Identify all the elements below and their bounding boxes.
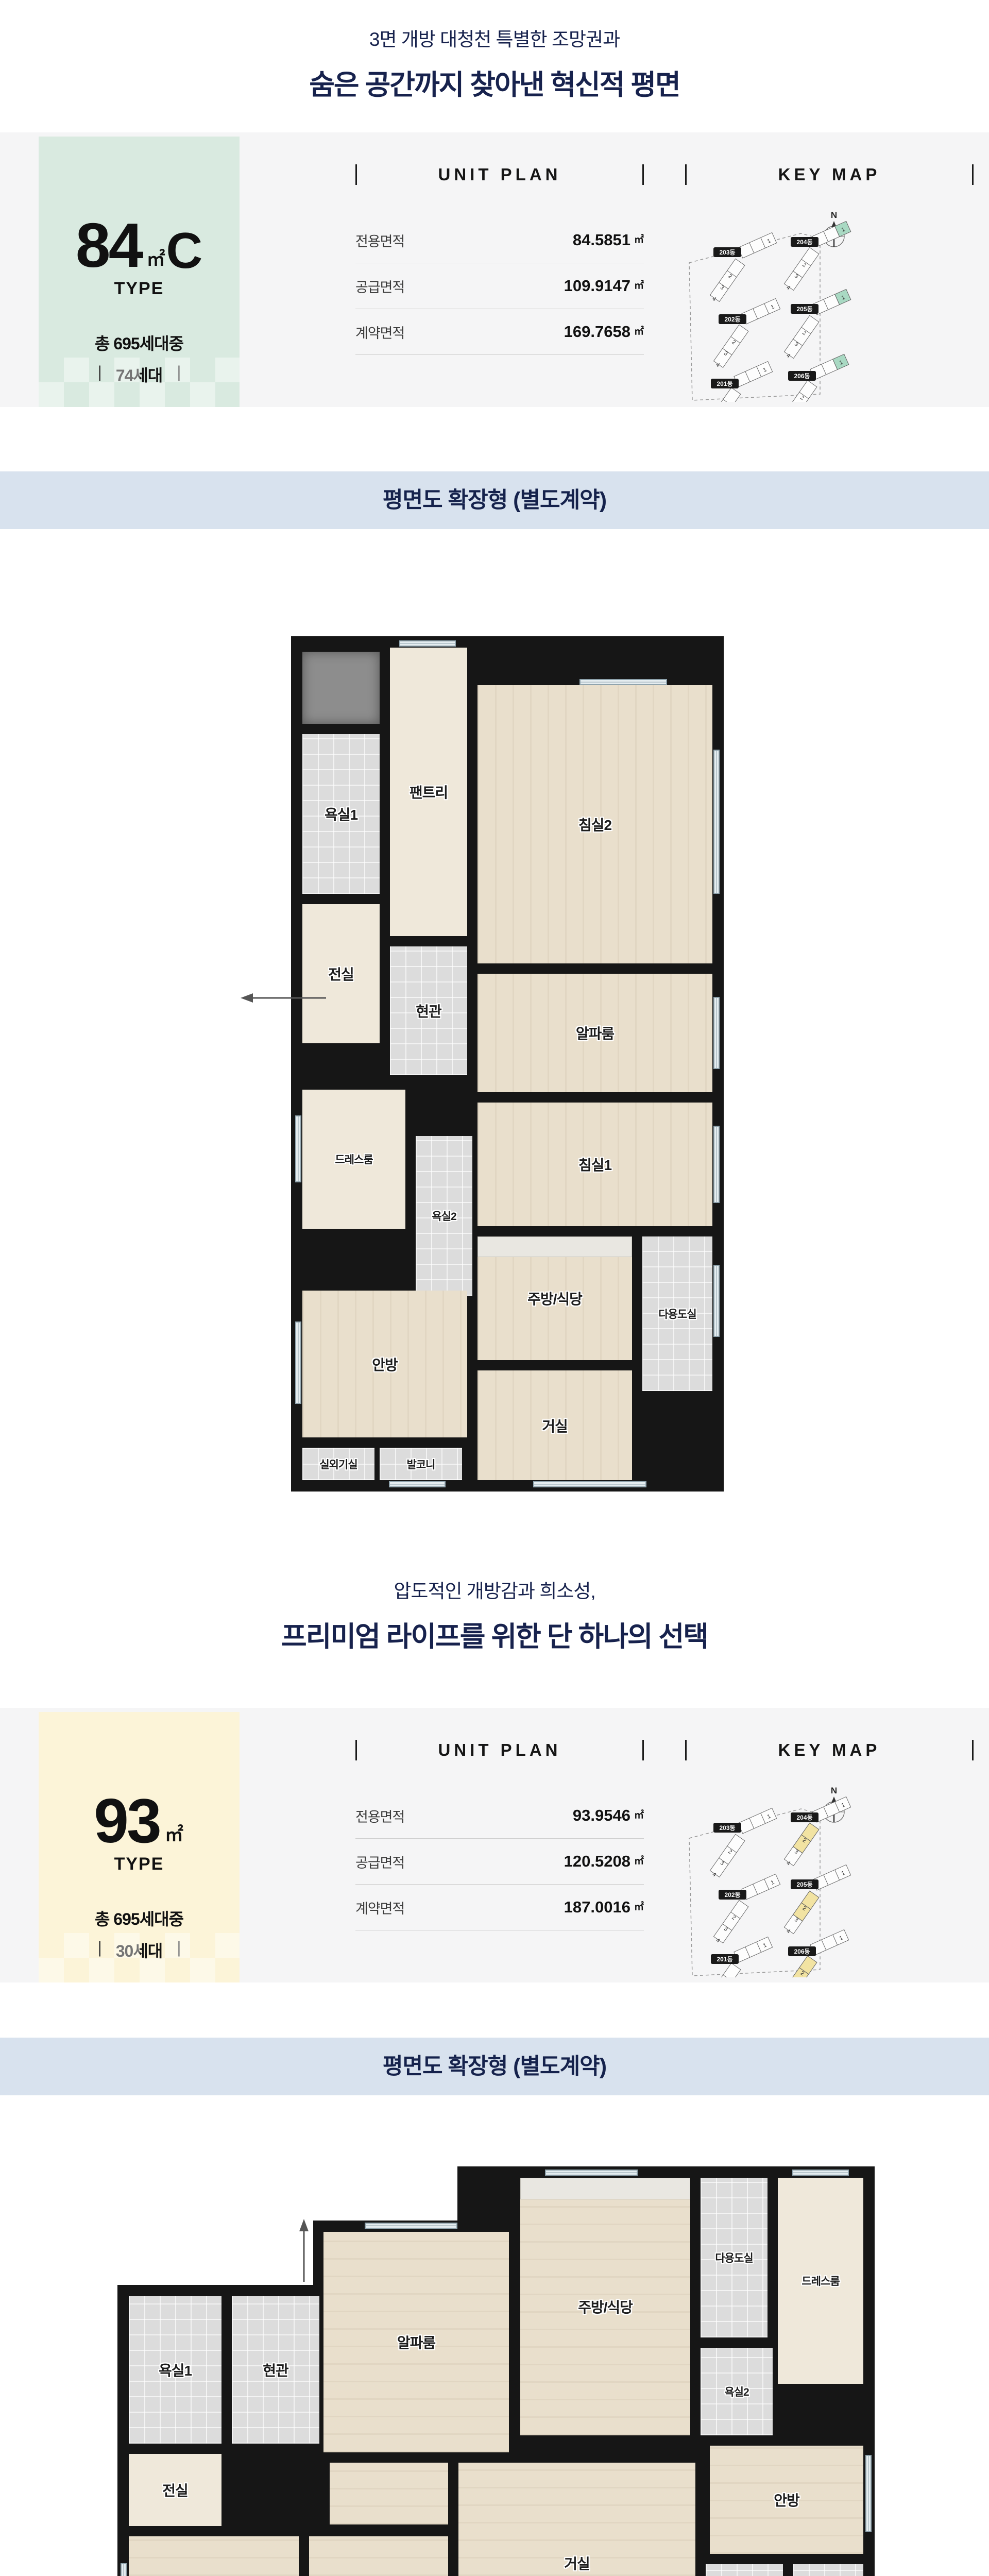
type-size-number: 93 (94, 1794, 160, 1848)
room-bath1: 욕실1 (129, 2296, 221, 2444)
area-number: 120.5208 (564, 1852, 630, 1870)
svg-text:N: N (831, 210, 837, 220)
svg-text:204동: 204동 (796, 239, 812, 246)
section-title-band-2: 평면도 확장형 (별도계약) (0, 2038, 989, 2095)
area-label: 전용면적 (355, 1806, 404, 1826)
intro2-subtitle: 압도적인 개방감과 희소성, (0, 1575, 989, 1603)
intro-block-1: 3면 개방 대청천 특별한 조망권과 숨은 공간까지 찾아낸 혁신적 평면 (0, 24, 989, 103)
entry-direction-arrow (298, 2218, 310, 2283)
key-map-84c: KEY MAP N2341203동2341204동2341202동2341205… (685, 132, 974, 407)
room-entrance: 현관 (390, 946, 467, 1075)
window (121, 2563, 127, 2576)
key-map-title: KEY MAP (687, 1740, 972, 1760)
area-value: 109.9147㎡ (564, 277, 644, 295)
kitchen-counter (520, 2178, 690, 2199)
svg-text:201동: 201동 (717, 1956, 732, 1963)
unit-plan-header: UNIT PLAN (355, 164, 644, 185)
type-card-84c: 84㎡C TYPE 총 695세대중 | 74세대 | (39, 137, 240, 407)
room-vestibule: 전실 (302, 904, 380, 1043)
entry-direction-arrow (240, 992, 327, 1004)
area-number: 109.9147 (564, 277, 630, 295)
intro1-title-strong: 혁신적 평면 (550, 70, 679, 100)
area-unit: ㎡ (634, 326, 644, 337)
window (713, 1265, 720, 1337)
floorplan-93: 욕실1 현관 전실 알파룸 주방/식당 다용도실 드레스룸 욕실2 안방 거실 … (117, 2166, 875, 2576)
svg-text:202동: 202동 (724, 1891, 740, 1899)
section-title-band-1: 평면도 확장형 (별도계약) (0, 471, 989, 529)
type-label: TYPE (39, 279, 240, 299)
intro2-title-strong: 단 하나의 선택 (547, 1621, 708, 1652)
area-label: 계약면적 (355, 322, 404, 342)
key-map-header: KEY MAP (685, 1740, 974, 1760)
unit-plan-header: UNIT PLAN (355, 1740, 644, 1760)
area-number: 84.5851 (573, 231, 630, 249)
svg-text:203동: 203동 (719, 1824, 735, 1832)
room-dressroom: 드레스룸 (778, 2178, 863, 2384)
table-row: 공급면적 109.9147㎡ (355, 263, 644, 309)
svg-text:206동: 206동 (794, 372, 810, 380)
floorplan-84c: 욕실1 전실 팬트리 현관 침실2 알파룸 침실1 드레스룸 욕실2 안방 주방… (291, 636, 724, 1492)
header-bar-right (972, 164, 974, 185)
type-label: TYPE (39, 1854, 240, 1874)
table-row: 계약면적 187.0016㎡ (355, 1885, 644, 1930)
svg-text:206동: 206동 (794, 1948, 810, 1955)
room-bedroom2: 침실2 (129, 2536, 299, 2576)
window (295, 1115, 301, 1182)
header-bar-right (642, 164, 644, 185)
svg-text:205동: 205동 (796, 306, 812, 313)
area-value: 93.9546㎡ (573, 1806, 644, 1825)
room-outdoor-unit: 실외기실 (793, 2564, 863, 2576)
window (533, 1481, 646, 1487)
room-bath2: 욕실2 (416, 1136, 472, 1296)
area-label: 계약면적 (355, 1897, 404, 1918)
room-kitchen: 주방/식당 (520, 2178, 690, 2435)
unit-plan-93: UNIT PLAN 전용면적 93.9546㎡ 공급면적 120.5208㎡ 계… (355, 1708, 644, 1982)
intro1-title-prefix: 숨은 공간까지 찾아낸 (309, 70, 550, 100)
unit-plan-title: UNIT PLAN (357, 165, 642, 184)
area-unit: ㎡ (634, 280, 644, 291)
key-map-93: KEY MAP N2341203동2341204동2341202동2341205… (685, 1708, 974, 1982)
room-master: 안방 (302, 1291, 467, 1437)
area-table: 전용면적 93.9546㎡ 공급면적 120.5208㎡ 계약면적 187.00… (355, 1793, 644, 1930)
room-bedroom1: 침실1 (478, 1103, 712, 1226)
type-card-93: 93㎡ TYPE 총 695세대중 | 30세대 | (39, 1712, 240, 1982)
header-bar-right (972, 1740, 974, 1760)
window (713, 1126, 720, 1203)
area-label: 공급면적 (355, 1852, 404, 1872)
type-row-93: 93㎡ TYPE 총 695세대중 | 30세대 | UNIT PLAN 전용면… (0, 1708, 989, 1982)
table-row: 전용면적 93.9546㎡ (355, 1793, 644, 1839)
area-unit: ㎡ (634, 234, 644, 245)
table-row: 공급면적 120.5208㎡ (355, 1839, 644, 1885)
room-bedroom2: 침실2 (478, 685, 712, 963)
window (365, 2223, 457, 2229)
window (545, 2170, 638, 2176)
area-unit: ㎡ (634, 1902, 644, 1912)
area-unit: ㎡ (634, 1810, 644, 1821)
intro2-title: 프리미엄 라이프를 위한 단 하나의 선택 (0, 1614, 989, 1654)
room-living: 거실 (478, 1370, 632, 1480)
room-hall (330, 2463, 448, 2524)
key-map-header: KEY MAP (685, 164, 974, 185)
svg-text:201동: 201동 (717, 380, 732, 387)
type-size-93: 93㎡ (39, 1794, 240, 1848)
intro1-subtitle: 3면 개방 대청천 특별한 조망권과 (0, 24, 989, 52)
room-bath2: 욕실2 (701, 2348, 773, 2435)
room-pantry: 팬트리 (390, 648, 467, 936)
svg-text:204동: 204동 (796, 1814, 812, 1821)
svg-text:203동: 203동 (719, 249, 735, 256)
type-size-unit: ㎡ (146, 251, 165, 267)
key-map-diagram: N2341203동2341204동2341202동2341205동2341201… (685, 198, 974, 402)
room-bath1: 욕실1 (302, 734, 380, 894)
room-living: 거실 (458, 2463, 695, 2576)
room-alpha: 알파룸 (323, 2232, 509, 2452)
table-row: 계약면적 169.7658㎡ (355, 309, 644, 355)
window (295, 1321, 301, 1404)
area-value: 120.5208㎡ (564, 1852, 644, 1871)
room-utility: 다용도실 (701, 2178, 768, 2337)
area-number: 93.9546 (573, 1806, 630, 1824)
header-bar-right (642, 1740, 644, 1760)
area-table: 전용면적 84.5851㎡ 공급면적 109.9147㎡ 계약면적 169.76… (355, 217, 644, 355)
intro-block-2: 압도적인 개방감과 희소성, 프리미엄 라이프를 위한 단 하나의 선택 (0, 1575, 989, 1654)
households-total: 총 695세대중 (39, 1906, 240, 1930)
intro2-title-prefix: 프리미엄 라이프를 위한 (281, 1621, 547, 1652)
area-unit: ㎡ (634, 1856, 644, 1867)
room-entrance: 현관 (232, 2296, 319, 2444)
type-size-suffix: C (166, 229, 202, 272)
area-value: 84.5851㎡ (573, 231, 644, 249)
room-outdoor-unit: 실외기실 (302, 1448, 374, 1480)
window (399, 640, 456, 647)
type-size-number: 84 (76, 219, 142, 273)
area-number: 169.7658 (564, 323, 630, 341)
table-row: 전용면적 84.5851㎡ (355, 217, 644, 263)
area-label: 공급면적 (355, 276, 404, 296)
window (865, 2455, 872, 2532)
room-balcony: 발코니 (706, 2564, 783, 2576)
intro1-title: 숨은 공간까지 찾아낸 혁신적 평면 (0, 62, 989, 103)
unit-plan-84c: UNIT PLAN 전용면적 84.5851㎡ 공급면적 109.9147㎡ 계… (355, 132, 644, 407)
kitchen-counter (478, 1236, 632, 1257)
area-label: 전용면적 (355, 230, 404, 250)
room-dressroom: 드레스룸 (302, 1090, 405, 1229)
room-balcony: 발코니 (380, 1448, 462, 1480)
room-vestibule: 전실 (129, 2454, 221, 2526)
room-utility: 다용도실 (642, 1236, 712, 1391)
type-row-84c: 84㎡C TYPE 총 695세대중 | 74세대 | UNIT PLAN 전용… (0, 132, 989, 407)
room-master: 안방 (710, 2446, 863, 2554)
key-map-title: KEY MAP (687, 165, 972, 184)
area-number: 187.0016 (564, 1898, 630, 1916)
window (389, 1481, 446, 1487)
window (713, 997, 720, 1069)
window (713, 750, 720, 894)
room-core-shaft (302, 652, 380, 724)
svg-text:N: N (831, 1786, 837, 1795)
checker-pattern (39, 358, 240, 407)
type-size-84c: 84㎡C (39, 219, 240, 273)
area-value: 169.7658㎡ (564, 323, 644, 341)
key-map-diagram: N2341203동2341204동2341202동2341205동2341201… (685, 1774, 974, 1977)
svg-text:205동: 205동 (796, 1881, 812, 1888)
promo-page: 3면 개방 대청천 특별한 조망권과 숨은 공간까지 찾아낸 혁신적 평면 84… (0, 0, 989, 2576)
area-value: 187.0016㎡ (564, 1898, 644, 1917)
svg-text:202동: 202동 (724, 316, 740, 323)
room-alpha: 알파룸 (478, 974, 712, 1092)
room-bedroom1: 침실1 (309, 2536, 448, 2576)
households-total: 총 695세대중 (39, 331, 240, 354)
checker-pattern (39, 1933, 240, 1982)
unit-plan-title: UNIT PLAN (357, 1740, 642, 1760)
window (792, 2170, 849, 2176)
type-size-unit: ㎡ (165, 1827, 183, 1843)
window (579, 679, 667, 685)
